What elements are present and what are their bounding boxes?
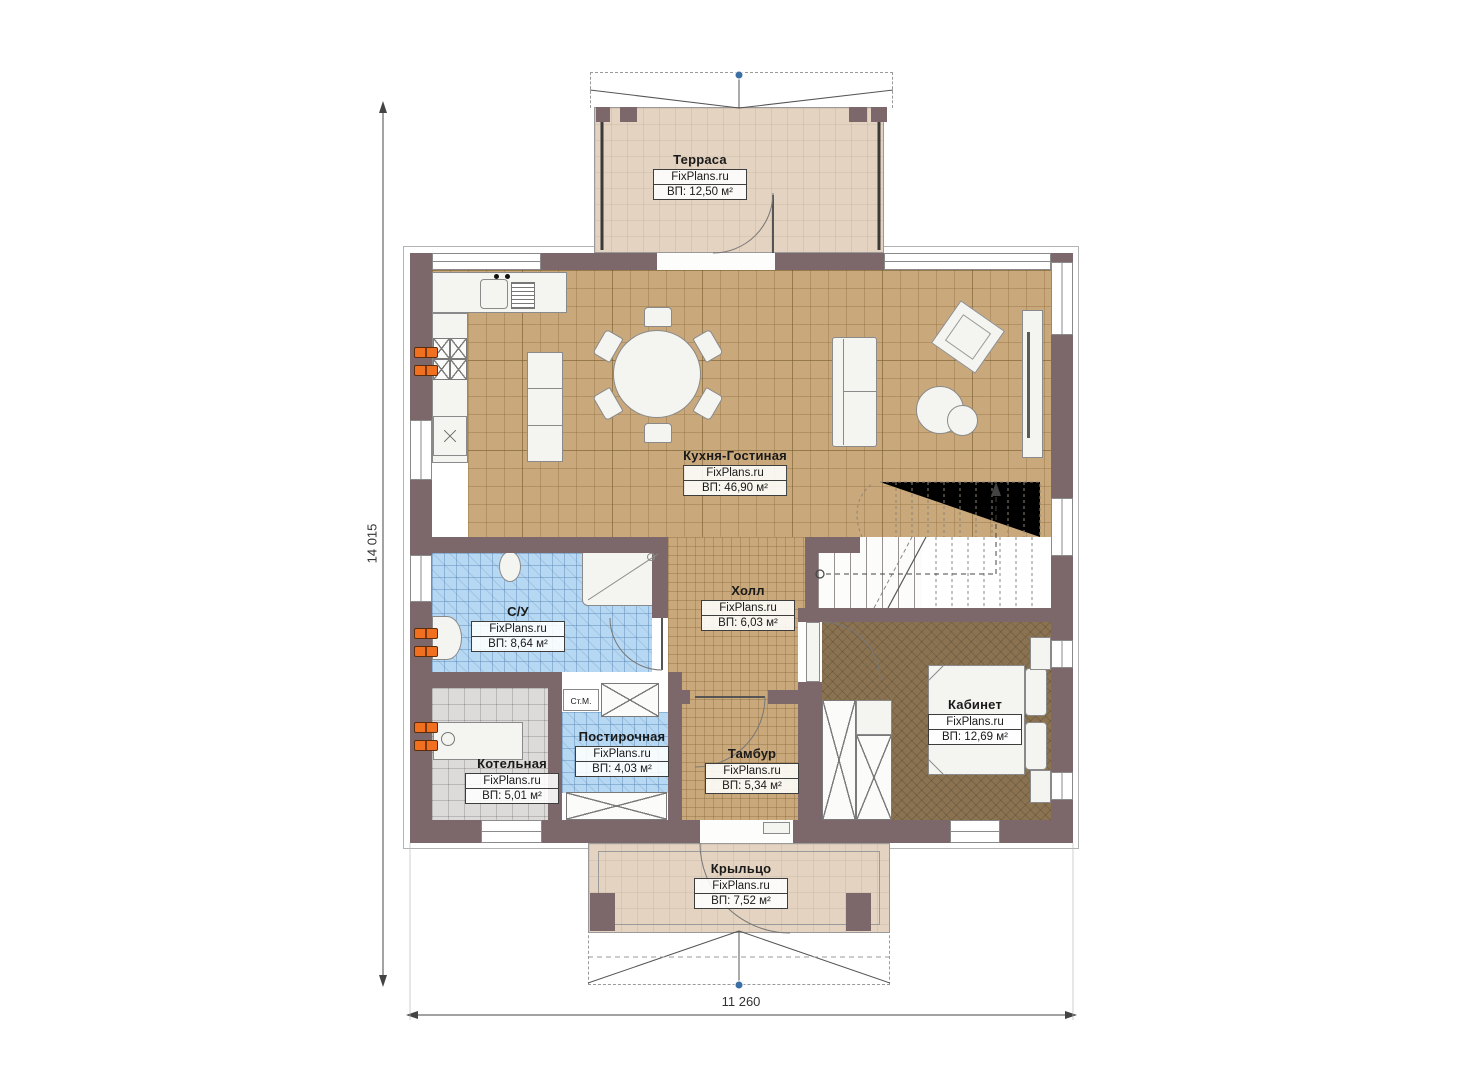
radiator-icon bbox=[414, 628, 438, 639]
room-name: Терраса bbox=[653, 152, 747, 167]
wall-left bbox=[410, 253, 432, 843]
roof-overhang-top bbox=[590, 72, 893, 108]
wall-vestibule-top2 bbox=[768, 690, 798, 704]
hall-label: Холл FixPlans.ru ВП: 6,03 м² bbox=[701, 583, 795, 631]
room-name: Кухня-Гостиная bbox=[683, 448, 787, 463]
brand-watermark: FixPlans.ru bbox=[575, 746, 669, 762]
room-name: Крыльцо bbox=[694, 861, 788, 876]
laundry-label: Постирочная FixPlans.ru ВП: 4,03 м² bbox=[575, 729, 669, 777]
terrace-post bbox=[849, 107, 867, 122]
burner-icon bbox=[450, 338, 467, 359]
sofa-cushion-line bbox=[844, 391, 876, 392]
dining-table bbox=[613, 330, 701, 418]
radiator-icon bbox=[414, 740, 438, 751]
stove bbox=[433, 338, 467, 380]
terrace-post bbox=[596, 107, 610, 122]
porch-label: Крыльцо FixPlans.ru ВП: 7,52 м² bbox=[694, 861, 788, 909]
kitchen-living-label: Кухня-Гостиная FixPlans.ru ВП: 46,90 м² bbox=[683, 448, 787, 496]
burner-icon bbox=[450, 359, 467, 380]
faucet-dot2 bbox=[505, 274, 510, 279]
office-shelf bbox=[856, 700, 892, 735]
room-area: ВП: 6,03 м² bbox=[701, 615, 795, 631]
window-bottom-boiler bbox=[481, 820, 542, 843]
office-wardrobe-1 bbox=[822, 700, 856, 820]
brand-watermark: FixPlans.ru bbox=[653, 169, 747, 185]
radiator-icon bbox=[414, 347, 438, 358]
window-right-living2 bbox=[1051, 498, 1073, 556]
office-label: Кабинет FixPlans.ru ВП: 12,69 м² bbox=[928, 697, 1022, 745]
room-name: Котельная bbox=[465, 756, 559, 771]
radiator-icon bbox=[414, 646, 438, 657]
window-right-office2 bbox=[1051, 772, 1073, 800]
room-area: ВП: 12,69 м² bbox=[928, 729, 1022, 745]
island-divider1 bbox=[527, 388, 563, 389]
wall-top-seg2 bbox=[775, 253, 884, 270]
toilet-bowl bbox=[499, 551, 521, 582]
radiator-icon bbox=[414, 722, 438, 733]
wall-top-seg1 bbox=[541, 253, 657, 270]
island-divider2 bbox=[527, 425, 563, 426]
tv-console bbox=[1022, 310, 1043, 458]
laundry-cabinet-bottom bbox=[566, 792, 667, 820]
window-right-office1 bbox=[1051, 640, 1073, 668]
brand-watermark: FixPlans.ru bbox=[683, 465, 787, 481]
boiler-label: Котельная FixPlans.ru ВП: 5,01 м² bbox=[465, 756, 559, 804]
sofa bbox=[832, 337, 877, 447]
wall-bottom-seg2 bbox=[542, 820, 700, 843]
coffee-table-small bbox=[947, 405, 978, 436]
window-top-left bbox=[432, 253, 541, 270]
faucet-dot bbox=[494, 274, 499, 279]
vestibule-label: Тамбур FixPlans.ru ВП: 5,34 м² bbox=[705, 746, 799, 794]
office-wardrobe-2 bbox=[856, 735, 892, 820]
stair-upper-zone bbox=[922, 537, 1051, 608]
brand-watermark: FixPlans.ru bbox=[694, 878, 788, 894]
terrace-post bbox=[620, 107, 637, 122]
brand-watermark: FixPlans.ru bbox=[928, 714, 1022, 730]
radiator-icon bbox=[414, 365, 438, 376]
porch-post bbox=[590, 893, 615, 931]
kitchen-island bbox=[527, 352, 563, 462]
wall-bottom-seg4 bbox=[1000, 820, 1073, 843]
room-area: ВП: 4,03 м² bbox=[575, 761, 669, 777]
room-name: Тамбур bbox=[705, 746, 799, 761]
brand-watermark: FixPlans.ru bbox=[705, 763, 799, 779]
office-door-leaf bbox=[806, 622, 820, 682]
room-area: ВП: 5,34 м² bbox=[705, 778, 799, 794]
dimension-left: 14 015 bbox=[364, 524, 379, 564]
room-name: Постирочная bbox=[575, 729, 669, 744]
window-left-bathroom bbox=[410, 555, 432, 602]
window-right-living1 bbox=[1051, 262, 1073, 335]
window-left-kitchen bbox=[410, 420, 432, 480]
wall-bathroom-top bbox=[432, 537, 668, 553]
terrace-post bbox=[871, 107, 887, 122]
dimension-bottom: 11 260 bbox=[722, 994, 761, 1009]
wall-bottom-seg3 bbox=[793, 820, 950, 843]
tv-screen-line bbox=[1027, 332, 1030, 438]
entry-door-leaf bbox=[763, 822, 790, 834]
brand-watermark: FixPlans.ru bbox=[471, 621, 565, 637]
room-name: С/У bbox=[471, 604, 565, 619]
porch-post bbox=[846, 893, 871, 931]
room-area: ВП: 46,90 м² bbox=[683, 480, 787, 496]
floor-plan: Ст.М. bbox=[0, 0, 1474, 1080]
washing-machine: Ст.М. bbox=[563, 689, 599, 711]
room-area: ВП: 7,52 м² bbox=[694, 893, 788, 909]
terrace-door-opening bbox=[657, 253, 775, 270]
bed-pillow-2 bbox=[1025, 722, 1047, 770]
kitchen-sink bbox=[480, 279, 508, 309]
wall-bottom-seg1 bbox=[410, 820, 481, 843]
room-area: ВП: 5,01 м² bbox=[465, 788, 559, 804]
dish-rack bbox=[511, 282, 535, 309]
brand-watermark: FixPlans.ru bbox=[701, 600, 795, 616]
laundry-cabinet-top bbox=[601, 683, 659, 717]
wall-vestibule-top1 bbox=[668, 690, 690, 704]
chair bbox=[644, 307, 672, 327]
sofa-back-line bbox=[843, 339, 844, 445]
room-name: Кабинет bbox=[928, 697, 1022, 712]
wall-stair-stub bbox=[805, 537, 860, 553]
cabinet-x-icon bbox=[444, 430, 456, 442]
boiler-dial-icon bbox=[441, 732, 455, 746]
office-window-sill-top bbox=[1030, 637, 1051, 670]
room-name: Холл bbox=[701, 583, 795, 598]
terrace-label: Терраса FixPlans.ru ВП: 12,50 м² bbox=[653, 152, 747, 200]
brand-watermark: FixPlans.ru bbox=[465, 773, 559, 789]
office-window-sill-bottom bbox=[1030, 770, 1051, 803]
window-top-right bbox=[884, 253, 1051, 270]
wall-office-top bbox=[798, 608, 1051, 622]
washing-machine-label: Ст.М. bbox=[571, 696, 592, 706]
chair bbox=[644, 423, 672, 443]
room-area: ВП: 12,50 м² bbox=[653, 184, 747, 200]
roof-overhang-bottom bbox=[588, 930, 890, 985]
room-area: ВП: 8,64 м² bbox=[471, 636, 565, 652]
bathroom-label: С/У FixPlans.ru ВП: 8,64 м² bbox=[471, 604, 565, 652]
window-bottom-office bbox=[950, 820, 1000, 843]
bed-pillow-1 bbox=[1025, 668, 1047, 716]
wall-bathroom-right bbox=[652, 537, 668, 618]
wall-bathroom-bottom bbox=[432, 672, 562, 688]
